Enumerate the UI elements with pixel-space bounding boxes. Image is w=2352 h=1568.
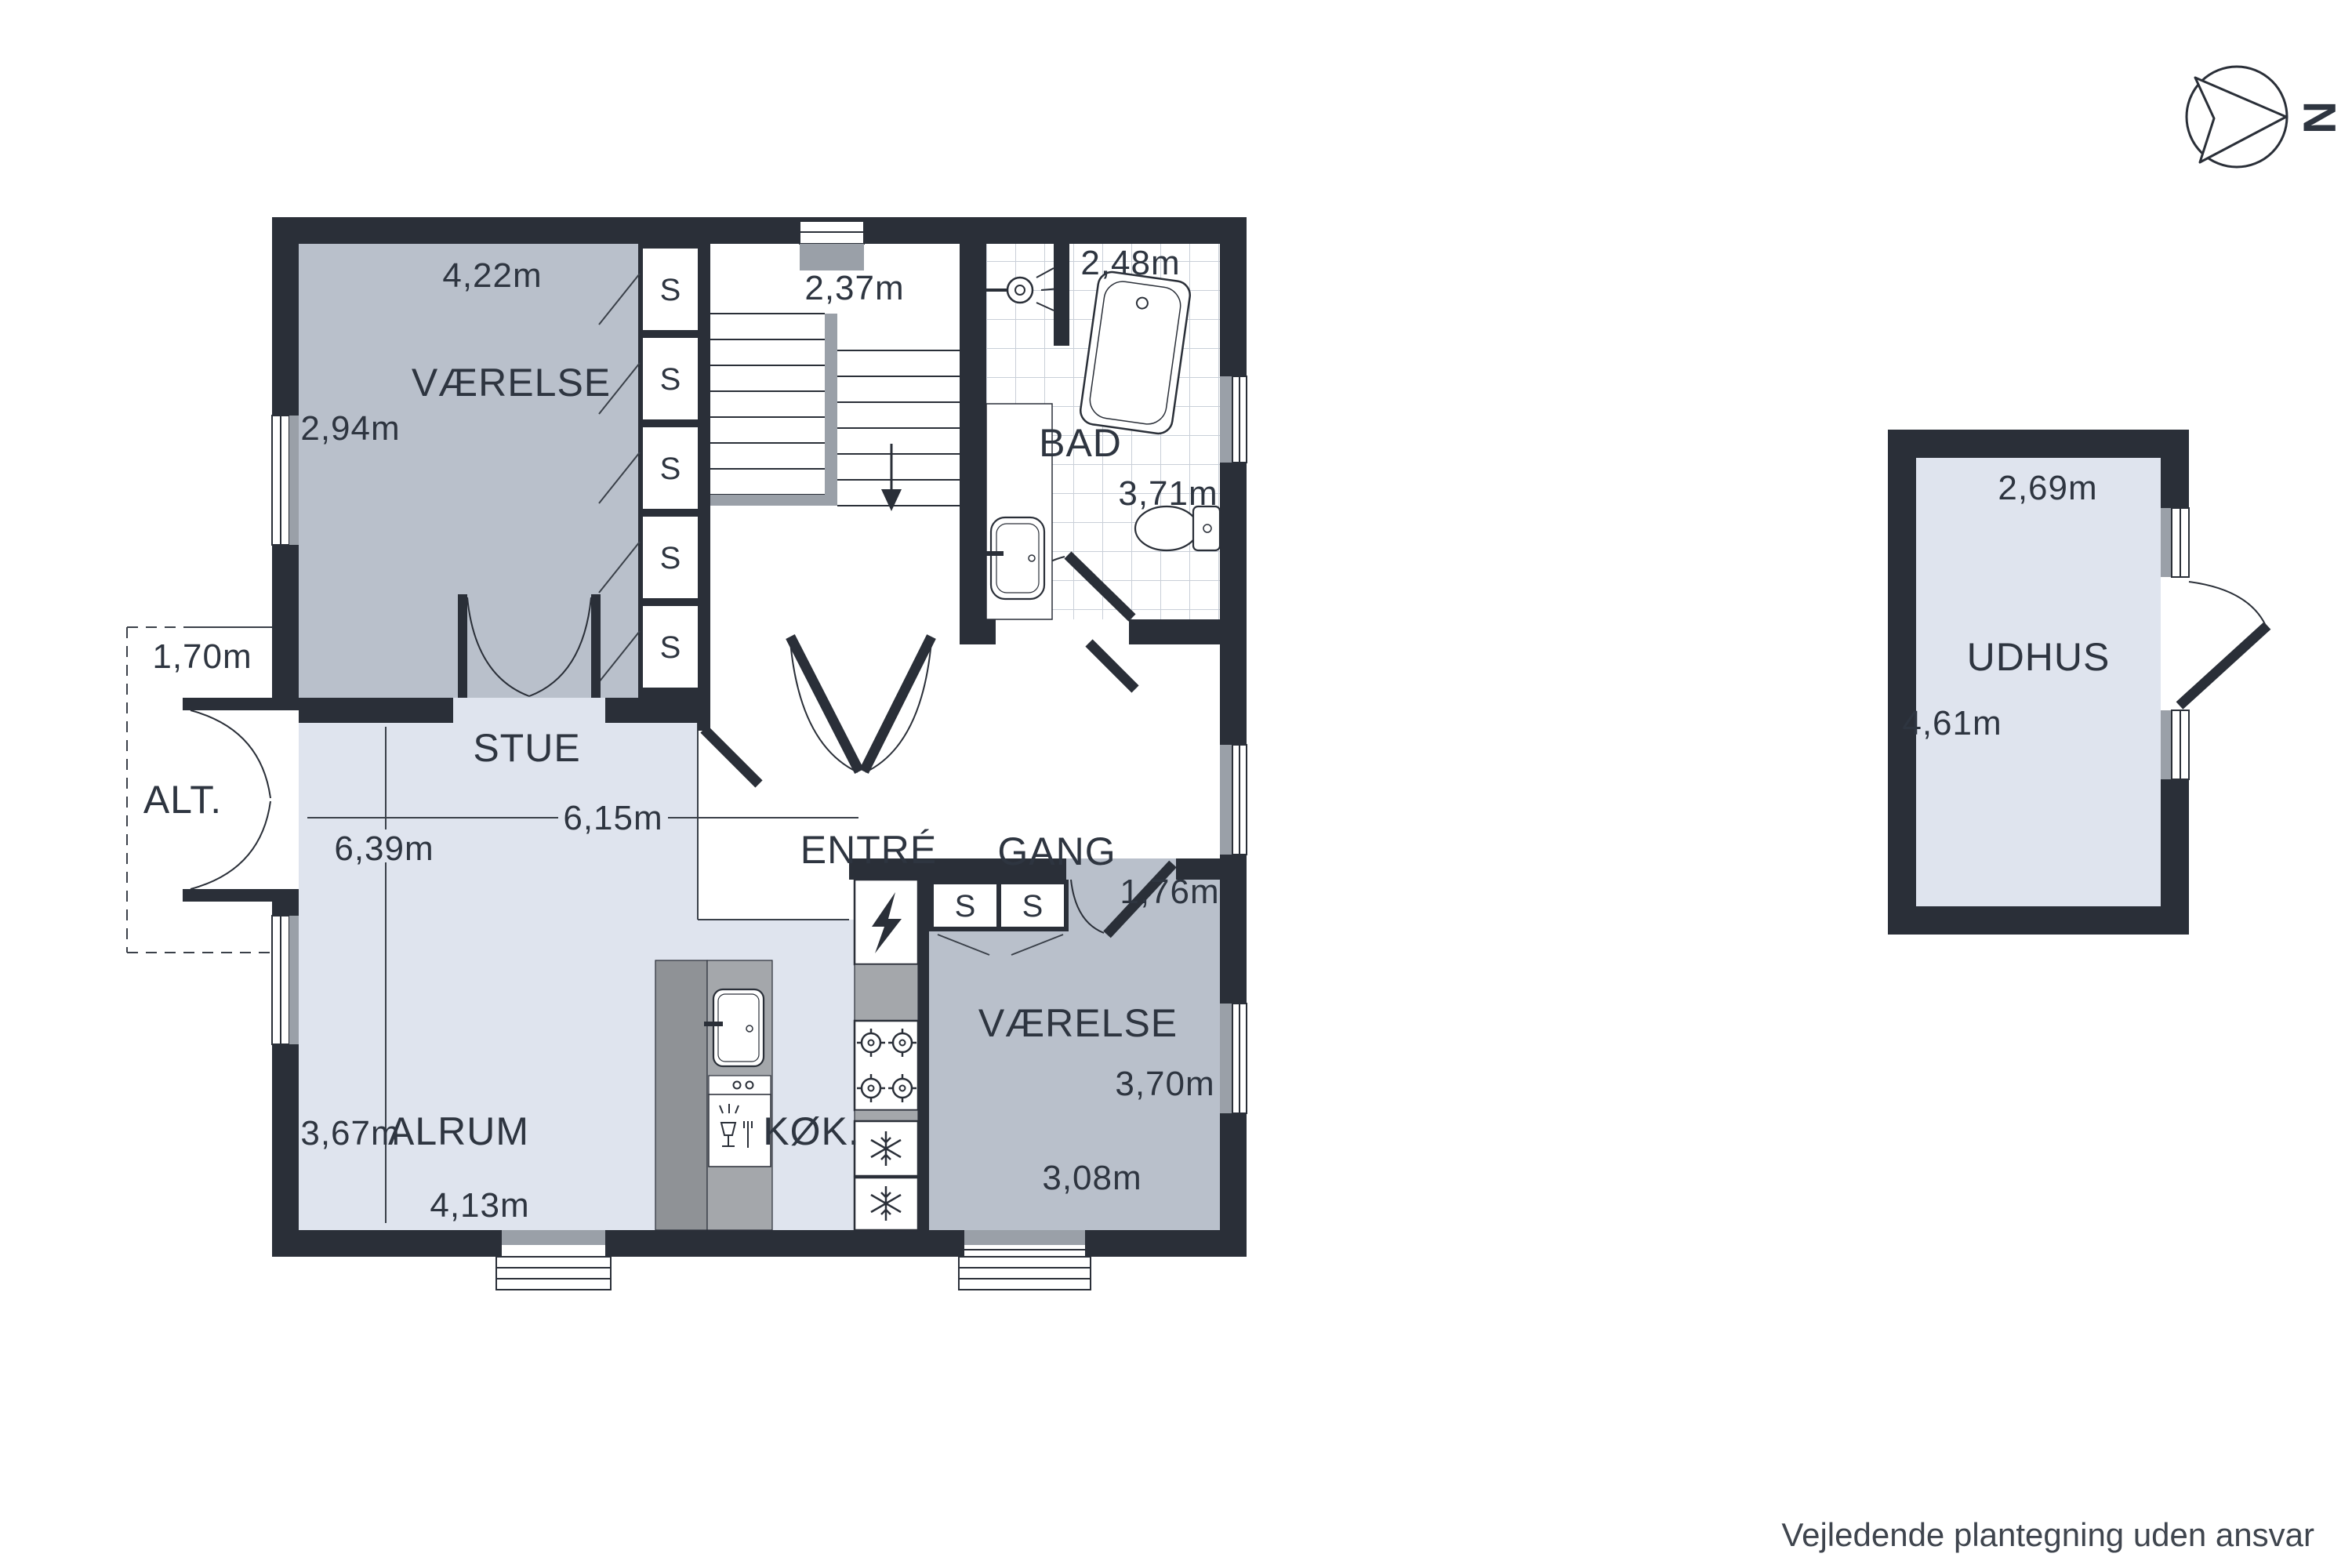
- dim-vaerelse-tl-top: 4,22m: [442, 256, 542, 295]
- terrace-door-steps: [959, 1230, 1091, 1290]
- vaerelse-tl-door-opening: [453, 698, 605, 723]
- window: [272, 416, 299, 545]
- dim-alt: 1,70m: [152, 637, 252, 676]
- dim-udhus-top: 2,69m: [1998, 469, 2097, 507]
- closet-letter: S: [660, 273, 681, 307]
- kitchen-counter: [855, 1110, 918, 1121]
- room-floor-udhus: [1916, 458, 2161, 906]
- window: [1220, 745, 1247, 855]
- dim-stue-height: 6,39m: [334, 829, 434, 868]
- room-label-entre: ENTRÉ: [800, 828, 937, 872]
- alt-door-opening: [272, 710, 299, 889]
- room-label-gang: GANG: [997, 829, 1116, 873]
- room-label-vaerelse-tl: VÆRELSE: [412, 361, 611, 405]
- window: [2161, 508, 2189, 577]
- stair-railing-bottom: [710, 495, 837, 506]
- floorplan-page: 4,22m 2,94m VÆRELSE 2,37m 2,48m BAD 3,71…: [0, 0, 2352, 1568]
- freezer-icon: [855, 1121, 918, 1176]
- room-label-kokken: KØK.: [763, 1109, 859, 1153]
- kitchen-sink-icon: [704, 989, 764, 1066]
- dim-alrum-bottom: 4,13m: [430, 1186, 529, 1225]
- dim-bad-right: 3,71m: [1118, 474, 1218, 513]
- dishwasher-icon: [709, 1076, 771, 1167]
- udhus-door-opening: [2161, 577, 2189, 710]
- window: [1220, 376, 1247, 463]
- dim-stue-width: 6,15m: [563, 799, 662, 837]
- window: [2161, 710, 2189, 779]
- closet-letter: S: [660, 630, 681, 665]
- dim-bad-top: 2,48m: [1080, 244, 1180, 282]
- entrance-door-steps: [800, 221, 864, 270]
- dim-vaerelse-br-right: 3,70m: [1115, 1065, 1214, 1103]
- room-label-stue: STUE: [473, 726, 580, 770]
- fridge-icon: [855, 1178, 918, 1230]
- dim-stairs: 2,37m: [804, 269, 904, 307]
- dim-vaerelse-br-bottom: 3,08m: [1042, 1159, 1142, 1197]
- floorplan-drawing: 4,22m 2,94m VÆRELSE 2,37m 2,48m BAD 3,71…: [0, 0, 2352, 1568]
- dim-gang: 1,76m: [1120, 873, 1219, 911]
- toilet-icon: [1135, 506, 1220, 550]
- dim-alrum-left: 3,67m: [300, 1114, 400, 1152]
- kitchen-counter: [855, 964, 918, 1021]
- electrical-panel-icon: [855, 880, 918, 964]
- closet-letter: S: [955, 889, 976, 924]
- window: [1220, 1004, 1247, 1113]
- room-label-bad: BAD: [1039, 421, 1122, 465]
- compass-north-icon: [2187, 67, 2287, 167]
- room-label-udhus: UDHUS: [1967, 635, 2111, 679]
- dim-udhus-left: 4,61m: [1902, 704, 2002, 742]
- terrace-door-steps: [496, 1230, 611, 1290]
- room-floor-vaerelse-top-left: [299, 244, 638, 698]
- disclaimer-text: Vejledende plantegning uden ansvar: [1781, 1516, 2314, 1553]
- bad-door-opening: [996, 619, 1129, 644]
- closet-letter: S: [1022, 889, 1044, 924]
- closet-letter: S: [660, 362, 681, 397]
- dim-vaerelse-tl-left: 2,94m: [300, 409, 400, 448]
- bathtub-icon: [1079, 270, 1192, 436]
- room-label-alt: ALT.: [143, 778, 222, 822]
- closet-letter: S: [660, 452, 681, 486]
- closet-letter: S: [660, 541, 681, 575]
- stair-railing: [825, 314, 837, 506]
- room-label-alrum: ALRUM: [388, 1109, 529, 1153]
- stove-icon: [855, 1021, 918, 1110]
- room-label-vaerelse-br: VÆRELSE: [978, 1001, 1178, 1045]
- window: [272, 916, 299, 1044]
- compass-north-label: N: [2294, 101, 2345, 134]
